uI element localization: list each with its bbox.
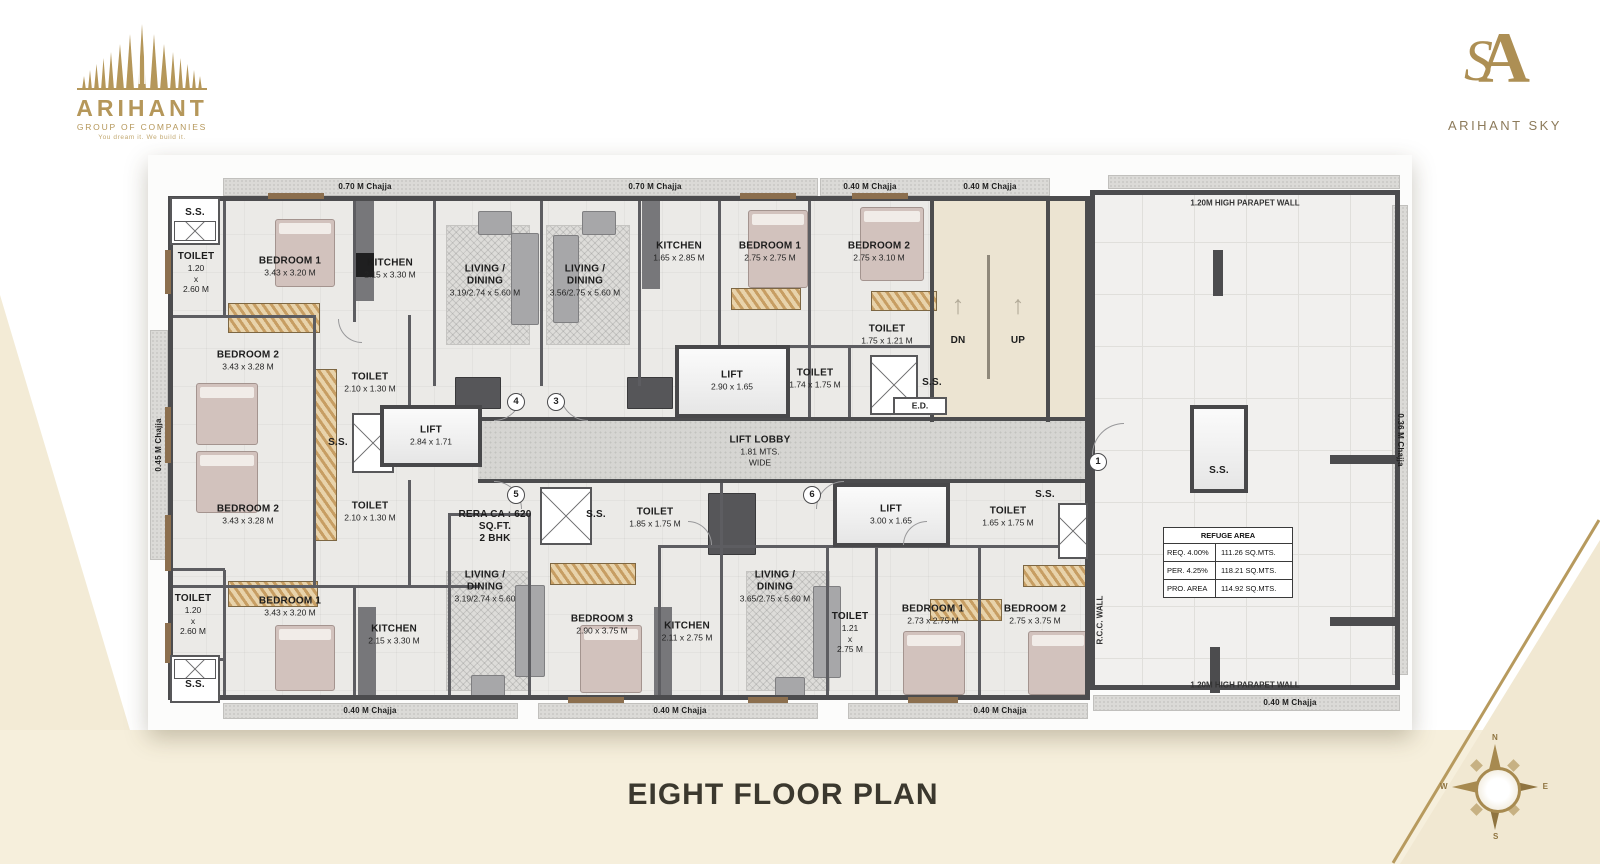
unit-circle-4: 4	[507, 393, 525, 411]
arihant-sky-name: ARIHANT SKY	[1420, 118, 1590, 133]
chajja-label-right: 0.36 M Chajja	[1395, 413, 1405, 466]
room-label-living-bottom-1: LIVING / DINING 3.19/2.74 x 5.60	[455, 570, 516, 605]
room-label-toilet-mid-upper: TOILET 2.10 x 1.30 M	[344, 372, 396, 395]
lift-refuge-label: S.S.	[1209, 465, 1229, 477]
arihant-sky-monogram-s: S	[1464, 32, 1493, 90]
unit-circle-6: 6	[803, 486, 821, 504]
room-label-bedroom1-top-right: BEDROOM 1 2.75 x 2.75 M	[739, 241, 801, 264]
room-label-toilet-top-left: TOILET 1.20 x 2.60 M	[178, 251, 215, 295]
service-shaft-x	[540, 487, 592, 545]
window-jamb	[852, 193, 908, 199]
room-label-living-top-2: LIVING / DINING 3.56/2.75 x 5.60 M	[550, 264, 620, 299]
chajja-strip-bottom-3	[848, 703, 1088, 719]
room-label-toilet-core-right: TOILET 1.65 x 1.75 M	[982, 506, 1034, 529]
room-label-toilet-bottom-left: TOILET 1.20 x 2.60 M	[175, 593, 212, 637]
compass-ring	[1475, 767, 1521, 813]
room-label-ss-core-right: S.S.	[1035, 489, 1055, 501]
lift-left-label: LIFT 2.84 x 1.71	[410, 425, 452, 448]
room-label-kitchen-top-center: KITCHEN 1.65 x 2.85 M	[653, 241, 705, 264]
refuge-table-row: PER. 4.25% 118.21 SQ.MTS.	[1164, 562, 1292, 580]
room-label-bedroom2-bottom-right: BEDROOM 2 2.75 x 3.75 M	[1004, 604, 1066, 627]
parapet-label-bottom: 1.20M HIGH PARAPET WALL	[1190, 681, 1299, 690]
lift-lobby-label: LIFT LOBBY 1.81 MTS. WIDE	[730, 434, 791, 467]
room-label-bedroom2-mid-lower: BEDROOM 2 3.43 x 3.28 M	[217, 504, 279, 527]
room-label-kitchen-top-left: KITCHEN 2.15 x 3.30 M	[364, 258, 416, 281]
chajja-label-left: 0.45 M Chajja	[154, 418, 164, 471]
lift-right-label: LIFT 3.00 x 1.65	[870, 504, 912, 527]
room-label-ss-top-left: S.S.	[185, 207, 205, 219]
compass-label-s: S	[1493, 832, 1498, 841]
stair-wall-right	[1046, 196, 1050, 422]
refuge-stub-wall	[1330, 617, 1400, 626]
room-label-kitchen-bottom-center: KITCHEN 2.11 x 2.75 M	[662, 621, 713, 644]
rera-label: RERA CA : 620 SQ.FT. 2 BHK	[459, 509, 532, 545]
room-label-kitchen-bottom-left: KITCHEN 2.15 x 3.30 M	[368, 624, 420, 647]
chajja-label: 0.40 M Chajja	[973, 706, 1026, 716]
room-label-toilet-core-1: TOILET 1.74 x 1.75 M	[789, 368, 841, 391]
compass-label-n: N	[1492, 733, 1498, 742]
stairs-dn-label: DN	[951, 335, 966, 347]
room-label-living-bottom-2: LIVING / DINING 3.65/2.75 x 5.60 M	[740, 570, 810, 605]
unit-circle-5: 5	[507, 486, 525, 504]
chajja-label: 0.40 M Chajja	[843, 182, 896, 192]
chajja-label: 0.70 M Chajja	[338, 182, 391, 192]
room-label-bedroom3-bottom: BEDROOM 3 2.90 x 3.75 M	[571, 614, 633, 637]
chajja-strip-refuge-top	[1108, 175, 1400, 189]
corridor-wall-bottom	[478, 479, 1090, 483]
service-shaft-x	[174, 659, 216, 679]
room-label-ss-mid: S.S.	[328, 437, 348, 449]
arihant-group-tagline: You dream it. We build it.	[42, 134, 242, 141]
unit-circle-1: 1	[1089, 453, 1107, 471]
chajja-label: 0.40 M Chajja	[1263, 698, 1316, 708]
window-jamb	[568, 697, 624, 703]
refuge-stub-wall	[1330, 455, 1400, 464]
floor-plan-canvas: ↑ ↑	[148, 155, 1412, 730]
room-label-toilet-top-right: TOILET 1.75 x 1.21 M	[861, 324, 913, 347]
arihant-group-name: ARIHANT	[42, 97, 242, 120]
chajja-label: 0.40 M Chajja	[963, 182, 1016, 192]
lift-refuge	[1190, 405, 1248, 493]
arihant-group-subtitle: GROUP OF COMPANIES	[42, 122, 242, 132]
window-jamb	[908, 697, 958, 703]
page-title: EIGHT FLOOR PLAN	[0, 778, 1566, 812]
window-jamb	[740, 193, 796, 199]
rcc-wall-label: R.C.C. WALL	[1096, 596, 1105, 645]
window-jamb	[165, 250, 171, 294]
window-jamb	[268, 193, 324, 199]
room-label-bedroom1-bottom-left: BEDROOM 1 3.43 x 3.20 M	[259, 596, 321, 619]
room-label-ss-core-bottom: S.S.	[586, 509, 606, 521]
lift-center-label: LIFT 2.90 x 1.65	[711, 370, 753, 393]
service-shaft-x	[174, 221, 216, 241]
window-jamb	[165, 407, 171, 463]
refuge-area-table: REFUGE AREA REQ. 4.00% 111.26 SQ.MTS. PE…	[1163, 527, 1293, 598]
chajja-label: 0.40 M Chajja	[653, 706, 706, 716]
refuge-pillar	[1213, 250, 1223, 296]
stairs-up-label: UP	[1011, 335, 1025, 347]
room-label-toilet-core-bottom: TOILET 1.85 x 1.75 M	[629, 507, 681, 530]
chajja-label: 0.40 M Chajja	[343, 706, 396, 716]
refuge-table-row: REQ. 4.00% 111.26 SQ.MTS.	[1164, 544, 1292, 562]
room-label-bedroom1-bottom-right: BEDROOM 1 2.73 x 2.75 M	[902, 604, 964, 627]
room-label-ss-bottom-left: S.S.	[185, 679, 205, 691]
window-jamb	[165, 515, 171, 571]
window-jamb	[748, 697, 788, 703]
compass-diamond	[1470, 759, 1483, 772]
service-shaft-x	[1058, 503, 1088, 559]
arihant-group-logo-icon	[67, 24, 217, 90]
chajja-strip-bottom-refuge	[1093, 695, 1400, 711]
room-label-bedroom2-mid-upper: BEDROOM 2 3.43 x 3.28 M	[217, 350, 279, 373]
room-label-toilet-bottom-center: TOILET 1.21 x 2.75 M	[832, 611, 869, 655]
arihant-group-logo: ARIHANT GROUP OF COMPANIES You dream it.…	[42, 24, 242, 141]
room-label-bedroom1-top-left: BEDROOM 1 3.43 x 3.20 M	[259, 256, 321, 279]
room-label-bedroom2-top-right: BEDROOM 2 2.75 x 3.10 M	[848, 241, 910, 264]
compass-label-w: W	[1440, 782, 1448, 791]
refuge-table-header: REFUGE AREA	[1164, 528, 1292, 544]
parapet-label-top: 1.20M HIGH PARAPET WALL	[1190, 199, 1299, 208]
room-label-ss-core-1: S.S.	[922, 377, 942, 389]
room-label-toilet-mid-lower: TOILET 2.10 x 1.30 M	[344, 501, 396, 524]
refuge-table-row: PRO. AREA 114.92 SQ.MTS.	[1164, 580, 1292, 597]
compass-rose-icon: N E S W	[1452, 744, 1538, 830]
unit-circle-3: 3	[547, 393, 565, 411]
ed-label: E.D.	[912, 401, 929, 412]
compass-label-e: E	[1543, 782, 1548, 791]
room-label-living-top-1: LIVING / DINING 3.19/2.74 x 5.60 M	[450, 264, 520, 299]
arihant-sky-logo: A S ARIHANT SKY	[1420, 22, 1590, 152]
chajja-label: 0.70 M Chajja	[628, 182, 681, 192]
